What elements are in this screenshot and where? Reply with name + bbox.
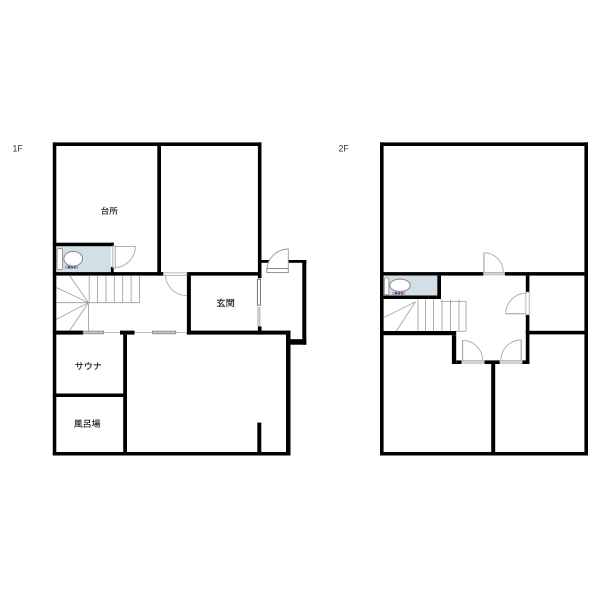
svg-text:1F: 1F [13,144,24,154]
svg-text:2F: 2F [339,144,350,154]
